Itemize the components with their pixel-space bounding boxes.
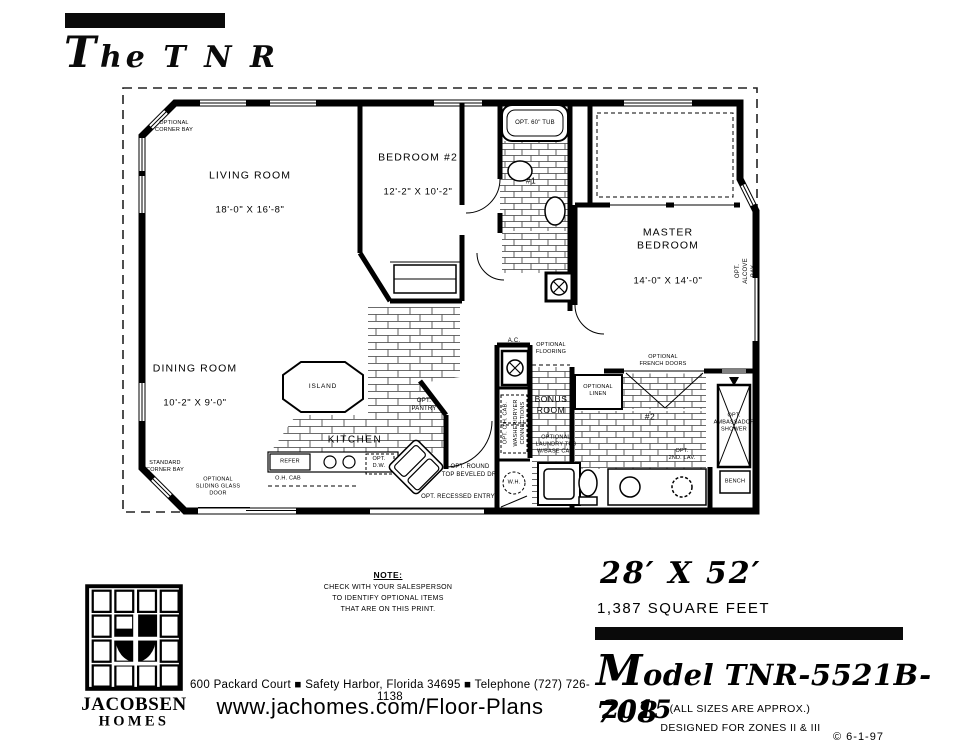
optional-pantry-label: OPT. PANTRY [412,397,437,413]
sink-1 [545,197,565,225]
dining-room-label: DINING ROOM 10'-2" X 9'-0" [153,341,237,430]
overhead-cabinet-label: O.H. CAB [275,475,301,482]
ac-label: A.C. [508,337,520,345]
french-doors-label: OPTIONAL FRENCH DOORS [639,354,686,368]
copyright-date: © 6-1-97 [833,731,884,743]
ambassador-shower-label: OPT. AMBASSADOR SHOWER [714,412,755,433]
note-title: NOTE: [288,570,488,580]
page: The T N R [0,0,975,754]
optional-oh-cab-label: OPT. O.H. CAB. [502,402,509,444]
bedroom2-dims: 12'-2" X 10'-2" [378,187,458,199]
refrigerator-label: REFER [280,458,300,465]
bench-label: BENCH [725,478,745,485]
title-rule-bar [65,13,225,28]
living-room-name: LIVING ROOM [209,169,291,183]
living-room-label: LIVING ROOM 18'-0" X 16'-8" [209,148,291,237]
plan-size: 28′ X 52′ [600,556,761,591]
zones-note: DESIGNED FOR ZONES II & III [648,722,833,734]
dining-room-dims: 10'-2" X 9'-0" [153,398,237,410]
optional-tub-label: OPT. 60" TUB [515,119,555,127]
note-body: CHECK WITH YOUR SALESPERSON TO IDENTIFY … [288,582,488,616]
toilet-2 [579,470,597,496]
logo-subname: HOMES [99,714,170,729]
bath1-label: #1 [526,175,536,186]
kitchen-label: KITCHEN [328,434,382,447]
linen-label: OPTIONAL LINEN [583,384,612,398]
master-bedroom-name: MASTER BEDROOM [619,226,717,253]
master-closet-shelf [597,113,733,197]
plan-title: The T N R [64,28,279,78]
floor-plan: LIVING ROOM 18'-0" X 16'-8" BEDROOM #2 1… [118,83,766,521]
optional-alcove-bay-label: OPT. ALCOVE BAY [734,258,758,284]
bedroom2-label: BEDROOM #2 12'-2" X 10'-2" [378,130,458,219]
logo-name: JACOBSEN [81,694,187,715]
jacobsen-homes-logo: JACOBSEN HOMES [78,584,190,734]
living-room-dims: 18'-0" X 16'-8" [209,205,291,217]
optional-sliding-glass-door-label: OPTIONAL SLIDING GLASS DOOR [196,476,240,497]
model-rule-bar [595,627,903,640]
tile-floors [270,141,706,505]
standard-corner-bay-label: STANDARD CORNER BAY [146,460,184,474]
water-heater-label: W.H. [508,479,521,486]
ac-closet [502,351,528,385]
bedroom2-name: BEDROOM #2 [378,151,458,165]
laundry-tub-label: OPTIONAL LAUNDRY TUB W/BASE CAB. [536,434,577,455]
laundry-tub [538,463,580,505]
washer-dryer-label: WASHER/DRYER CONNECTIONS [513,399,527,446]
bedroom2-wardrobe [390,262,462,293]
water-heater [501,472,527,507]
island-label: ISLAND [309,383,337,391]
second-lav-label: OPT. 2ND. LAV. [669,448,696,462]
master-bedroom-label: MASTER BEDROOM 14'-0" X 14'-0" [619,205,717,308]
hall-utility-closet [546,273,572,301]
bonus-room-label: BONUS ROOM [535,394,568,416]
round-top-door-label: OPT. ROUND TOP BEVELED DR. [442,463,498,479]
square-feet: 1,387 SQUARE FEET [597,600,770,617]
bath2-label: #2 [645,411,655,422]
sizes-approx-note: (ALL SIZES ARE APPROX.) [655,703,825,715]
dining-room-name: DINING ROOM [153,362,237,376]
optional-flooring-label: OPTIONAL FLOORING [536,342,566,356]
bath2-fixtures [579,469,706,505]
salesperson-note: NOTE: CHECK WITH YOUR SALESPERSON TO IDE… [288,570,488,616]
dishwasher-label: OPT. D.W. [372,456,385,470]
website-url: www.jachomes.com/Floor-Plans [215,694,545,720]
optional-corner-bay-label: OPTIONAL CORNER BAY [155,120,193,134]
master-bedroom-dims: 14'-0" X 14'-0" [619,275,717,287]
recessed-entry-label: OPT. RECESSED ENTRY [421,493,495,501]
